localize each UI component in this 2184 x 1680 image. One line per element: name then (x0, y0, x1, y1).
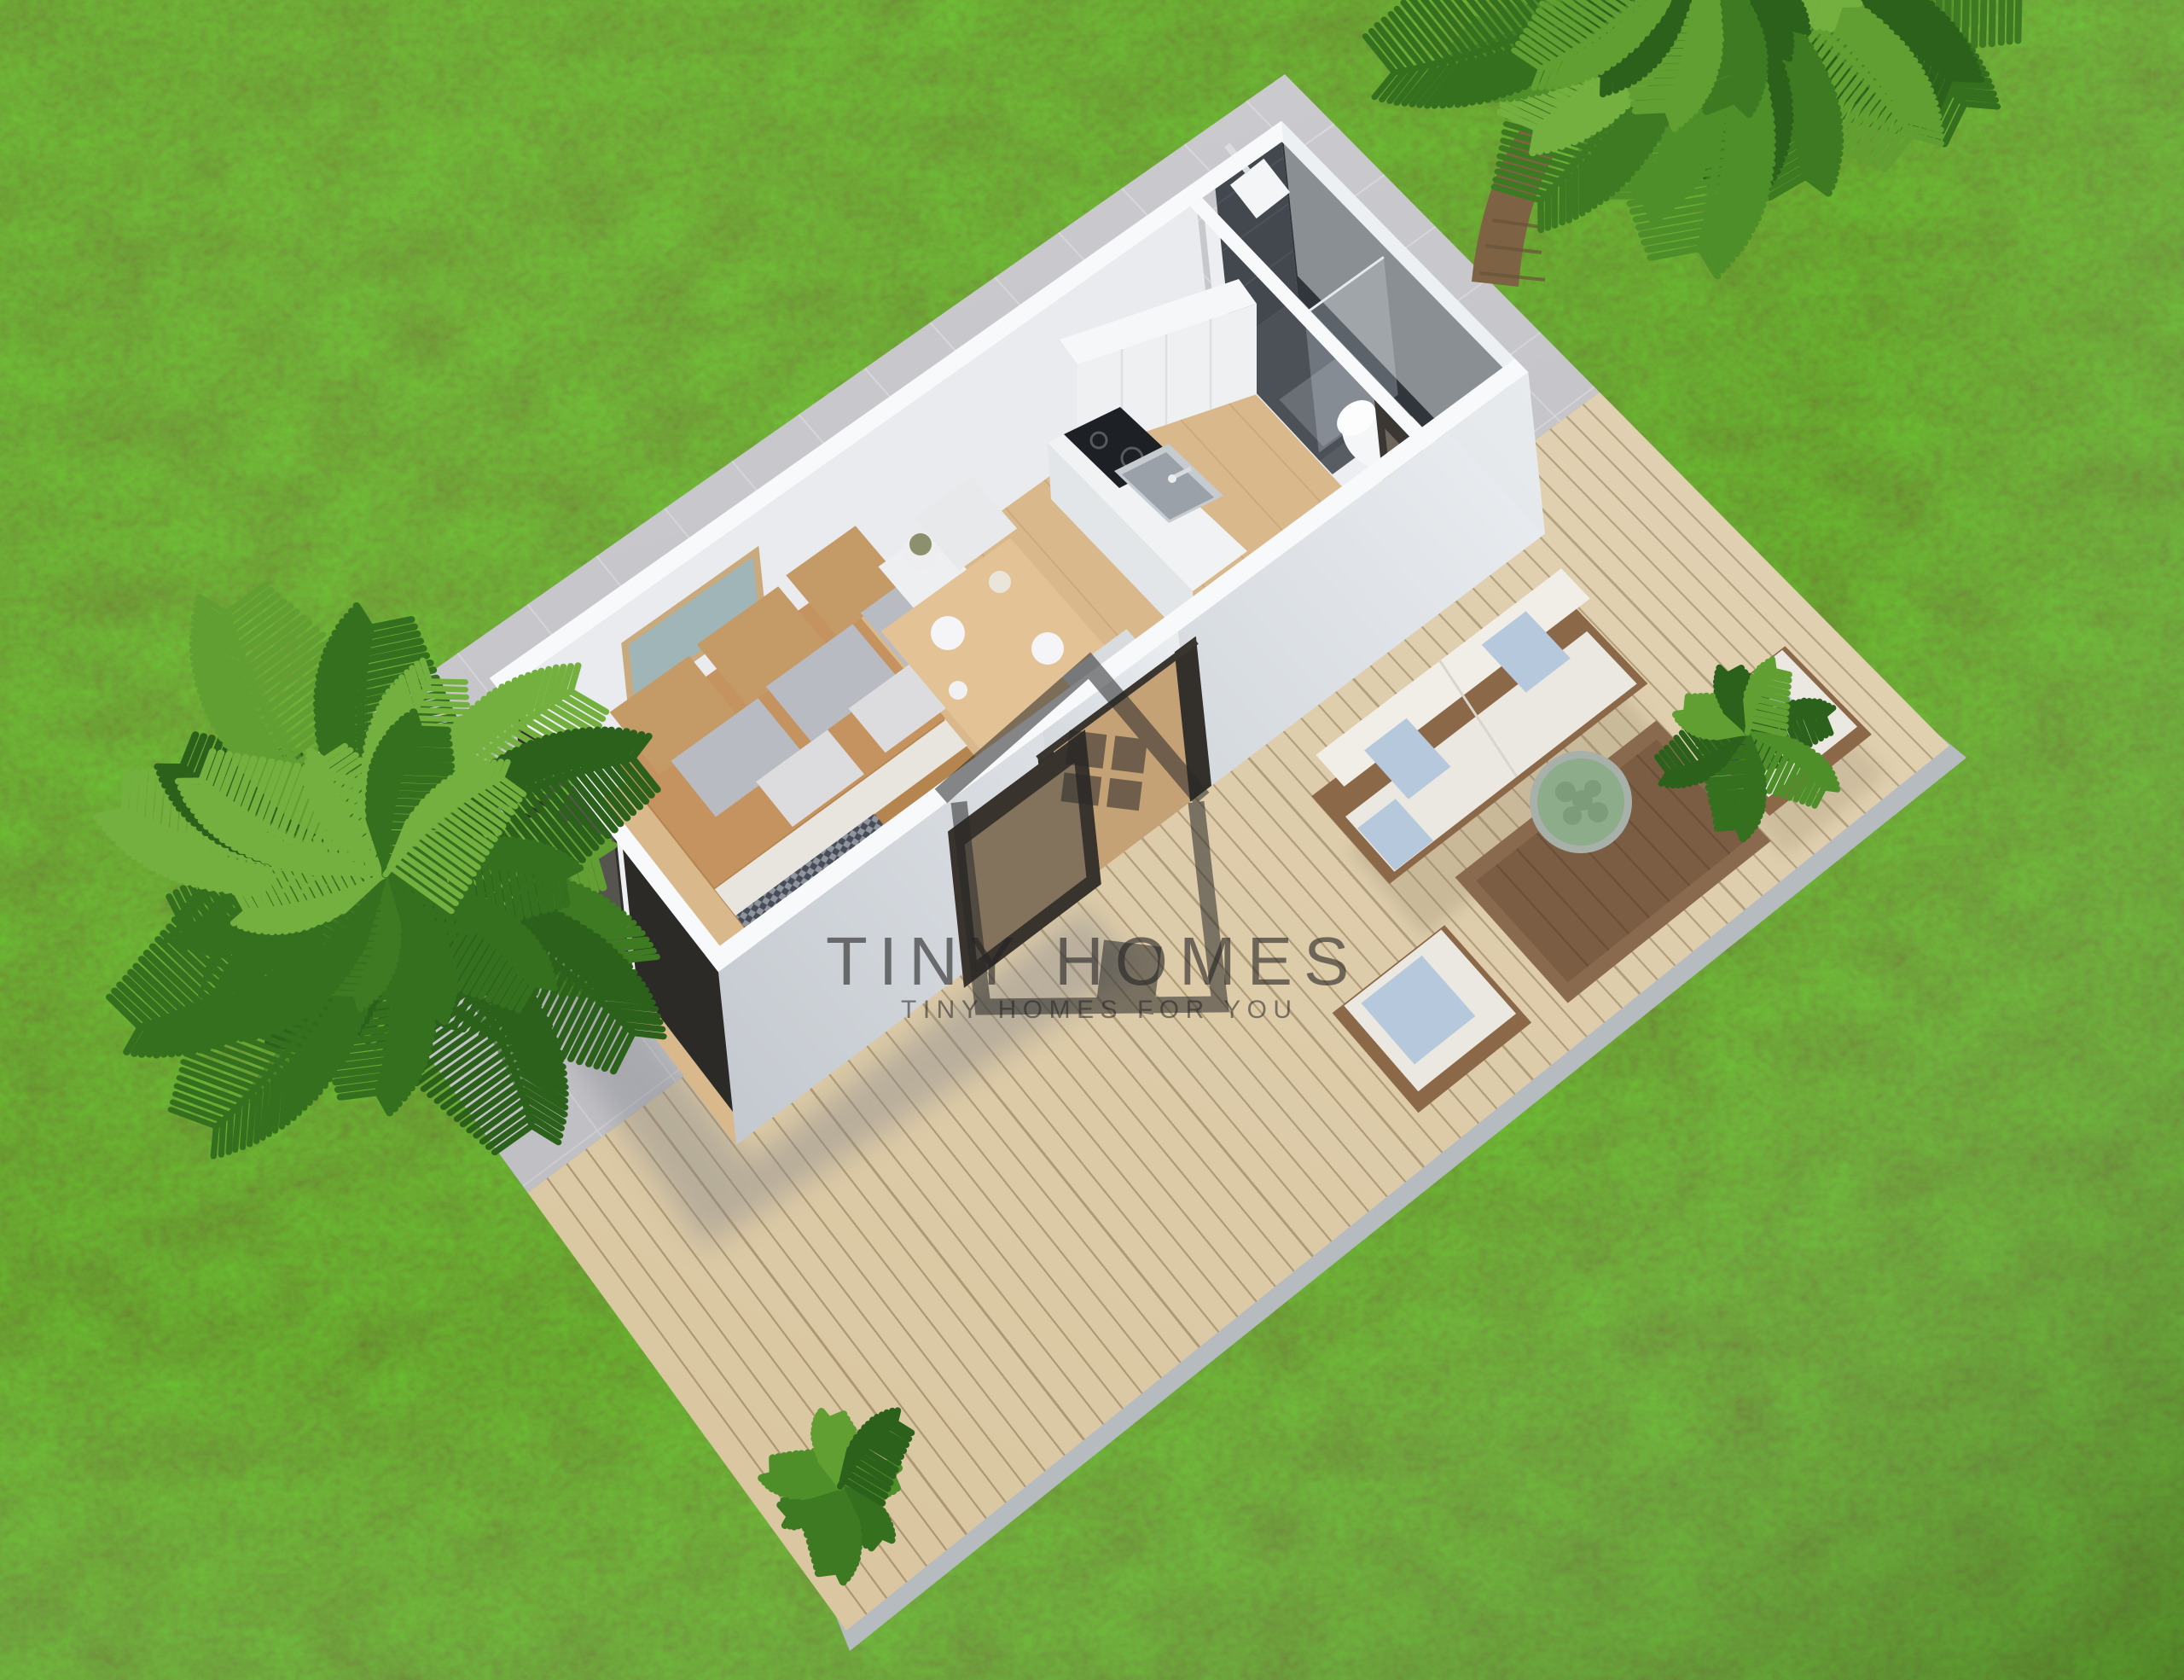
svg-text:TINY HOMES FOR YOU: TINY HOMES FOR YOU (901, 996, 1298, 1024)
svg-text:TINY HOMES: TINY HOMES (826, 923, 1360, 999)
